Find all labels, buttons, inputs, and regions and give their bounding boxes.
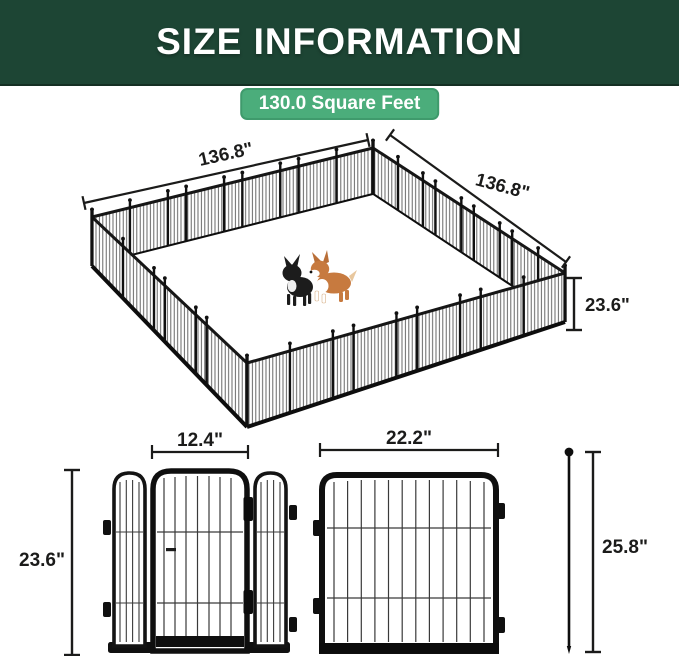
- side-panel-left: [114, 473, 145, 646]
- ground-stake-illustration: 25.8": [565, 448, 648, 654]
- panel-base-bar: [319, 643, 499, 653]
- pen-right-width-label: 136.8": [473, 168, 532, 203]
- pen-post-finial: [421, 171, 425, 175]
- pen-post-finial: [458, 293, 462, 297]
- area-badge: 130.0 Square Feet: [240, 88, 440, 120]
- pen-post-finial: [121, 237, 125, 241]
- stake-ball-top: [565, 448, 574, 457]
- door-latch: [166, 548, 176, 551]
- pen-post-finial: [415, 305, 419, 309]
- pen-post-finial: [278, 161, 282, 165]
- size-information-infographic: SIZE INFORMATION 130.0 Square Feet: [0, 0, 679, 656]
- pen-post-finial: [90, 208, 94, 212]
- pen-post-finial: [498, 221, 502, 225]
- dimension-stake-height: [585, 452, 601, 652]
- door-bottom-bar: [156, 636, 244, 647]
- dimension-door-height: [64, 470, 80, 655]
- door-width-label: 12.4": [177, 430, 223, 451]
- pen-post-finial: [152, 266, 156, 270]
- pen-post-finial: [395, 311, 399, 315]
- pen-left-width-label: 136.8": [196, 137, 254, 169]
- connector-tab: [289, 617, 297, 632]
- pen-post-finial: [205, 316, 209, 320]
- door-height-label: 23.6": [19, 550, 65, 571]
- size-diagram: 136.8" 136.8" 23.6" 12.4": [0, 120, 679, 656]
- pen-post-finial: [194, 305, 198, 309]
- door-panel-illustration: 12.4" 23.6": [19, 430, 297, 655]
- playpen-illustration: 136.8" 136.8" 23.6": [83, 129, 630, 427]
- stake-tip: [567, 646, 571, 654]
- pen-post-finial: [240, 171, 244, 175]
- pen-post-finial: [331, 329, 335, 333]
- pen-post-finial: [459, 196, 463, 200]
- pen-post-finial: [222, 175, 226, 179]
- pen-post-finial: [297, 157, 301, 161]
- pen-post-finial: [479, 287, 483, 291]
- side-panel-right: [255, 473, 286, 646]
- pen-post-finial: [184, 184, 188, 188]
- connector-tab: [313, 598, 321, 614]
- connector-tab: [497, 503, 505, 519]
- pen-post-finial: [510, 229, 514, 233]
- header-banner: SIZE INFORMATION: [0, 0, 679, 86]
- door-hinge: [244, 590, 254, 614]
- pen-post-finial: [288, 341, 292, 345]
- pen-post-finial: [163, 276, 167, 280]
- door-frame: [153, 471, 247, 651]
- pen-post-finial: [371, 139, 375, 143]
- pen-post-finial: [166, 189, 170, 193]
- wide-panel-illustration: 22.2": [313, 428, 505, 653]
- pen-post-finial: [396, 155, 400, 159]
- connector-tab: [313, 520, 321, 536]
- pen-post-finial: [128, 198, 132, 202]
- pen-height-label: 23.6": [585, 294, 630, 315]
- pen-post-finial: [522, 275, 526, 279]
- pen-post-finial: [536, 246, 540, 250]
- connector-tab: [497, 617, 505, 633]
- dimension-pen-height: [566, 278, 582, 330]
- panel-width-label: 22.2": [386, 428, 432, 449]
- pen-post-finial: [352, 323, 356, 327]
- stake-height-label: 25.8": [602, 537, 648, 558]
- connector-tab: [103, 520, 111, 535]
- door-hinge: [244, 497, 254, 521]
- pen-post-finial: [434, 179, 438, 183]
- connector-tab: [103, 602, 111, 617]
- connector-tab: [289, 505, 297, 520]
- pen-post-finial: [245, 354, 249, 358]
- page-title: SIZE INFORMATION: [156, 21, 523, 63]
- pen-post-finial: [472, 204, 476, 208]
